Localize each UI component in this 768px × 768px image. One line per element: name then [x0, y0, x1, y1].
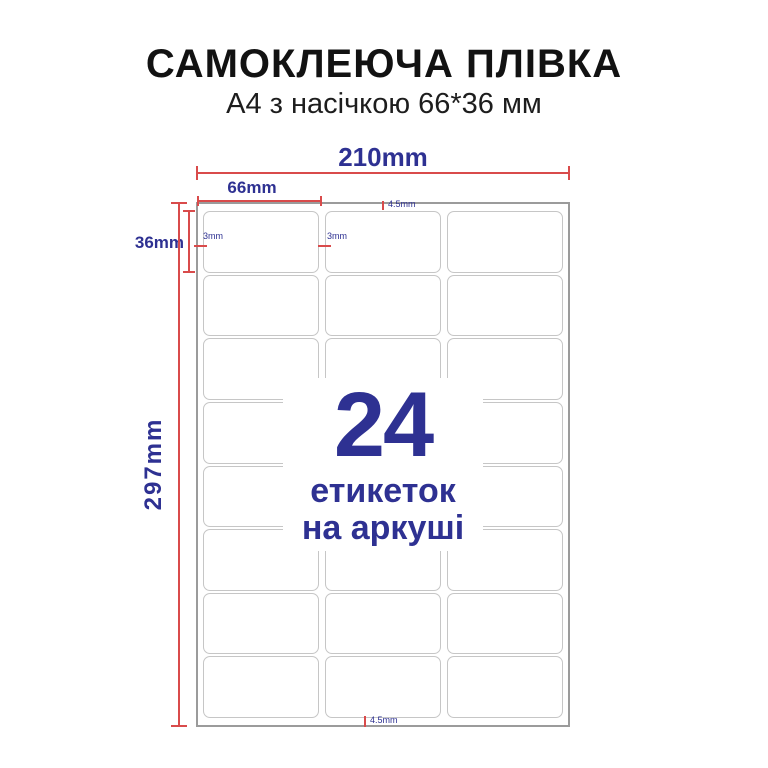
label-cell — [325, 656, 441, 718]
label-cell — [447, 275, 563, 337]
labels-count: 24 — [283, 382, 483, 469]
sheet-width-dimension-label: 210mm — [196, 142, 570, 173]
label-cell — [325, 211, 441, 273]
column-gap-label: 3mm — [327, 231, 347, 241]
row-height-dimension-line — [188, 210, 190, 273]
top-margin-label: 4.5mm — [388, 199, 416, 209]
row-height-dimension-label: 36mm — [132, 233, 184, 253]
label-cell — [447, 656, 563, 718]
column-width-dimension-label: 66mm — [197, 178, 307, 198]
bottom-margin-label: 4.5mm — [370, 715, 398, 725]
sheet-height-dimension-line — [178, 202, 180, 727]
labels-count-overlay: 24 етикеток на аркуші — [283, 378, 483, 551]
label-cell — [447, 211, 563, 273]
labels-caption-line2: на аркуші — [283, 515, 483, 543]
column-width-dimension-line — [197, 200, 322, 202]
bottom-margin-tick — [364, 716, 366, 727]
label-cell — [203, 275, 319, 337]
left-gap-tick — [194, 245, 207, 247]
label-cell — [325, 275, 441, 337]
page-subtitle: А4 з насічкою 66*36 мм — [0, 88, 768, 121]
product-diagram: САМОКЛЕЮЧА ПЛІВКА А4 з насічкою 66*36 мм… — [0, 0, 768, 768]
column-gap-tick — [318, 245, 331, 247]
left-gap-label: 3mm — [203, 231, 223, 241]
sheet-width-dimension-line — [196, 172, 570, 174]
label-cell — [325, 593, 441, 655]
label-cell — [203, 211, 319, 273]
label-cell — [447, 593, 563, 655]
sheet-height-dimension-label: 297mm — [140, 404, 166, 524]
top-margin-tick — [382, 201, 384, 210]
label-cell — [203, 656, 319, 718]
page-title: САМОКЛЕЮЧА ПЛІВКА — [0, 42, 768, 87]
label-cell — [203, 593, 319, 655]
labels-caption-line1: етикеток — [283, 478, 483, 506]
